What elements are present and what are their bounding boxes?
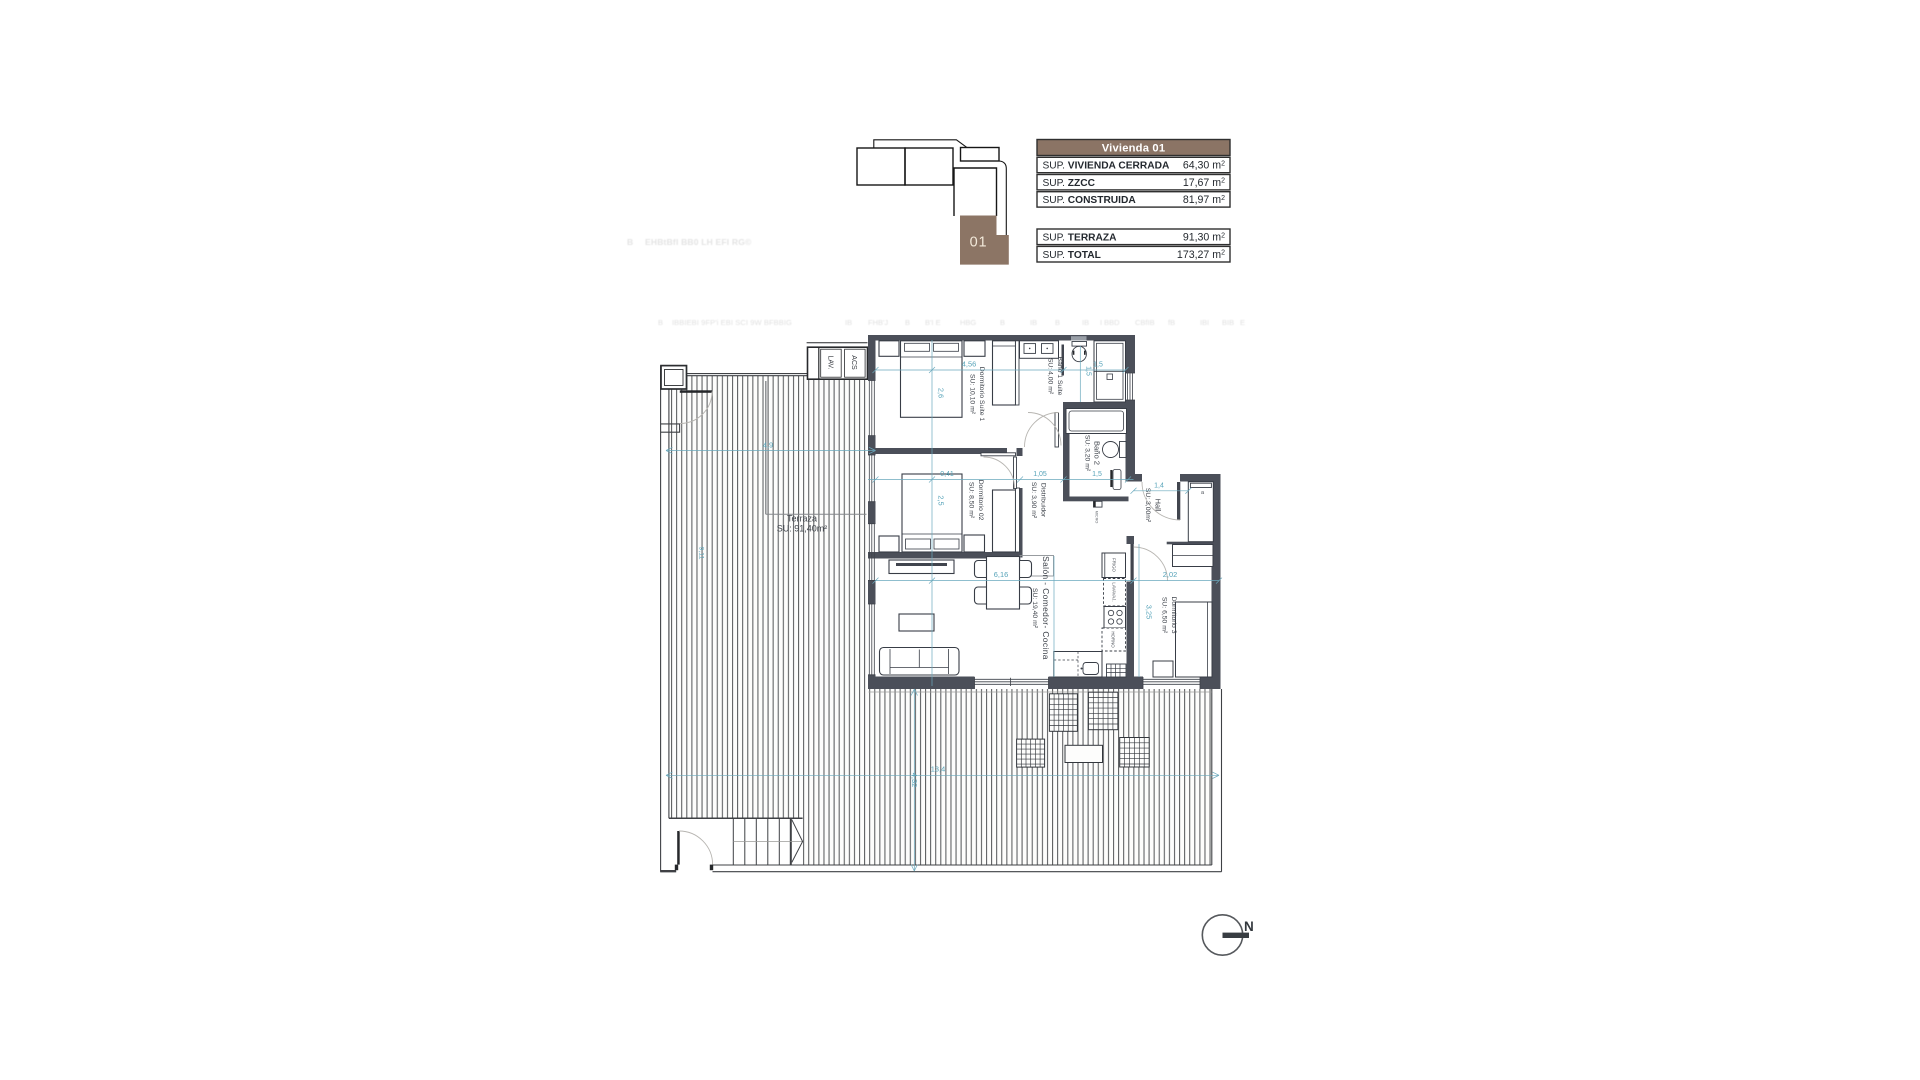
svg-text:2,6: 2,6 bbox=[937, 388, 946, 398]
svg-text:Dormitorio 3: Dormitorio 3 bbox=[1170, 596, 1177, 633]
svg-text:13,4: 13,4 bbox=[931, 765, 945, 774]
svg-text:SUP. ZZCC: SUP. ZZCC bbox=[1043, 178, 1096, 189]
svg-text:01: 01 bbox=[970, 235, 988, 251]
svg-text:64,30 m2: 64,30 m2 bbox=[1183, 160, 1225, 172]
svg-text:Salón - Comedor- Cocina: Salón - Comedor- Cocina bbox=[1041, 556, 1051, 660]
svg-text:HBG: HBG bbox=[960, 318, 976, 327]
svg-text:3,25: 3,25 bbox=[1145, 605, 1154, 619]
svg-text:SU: 4,00 m²: SU: 4,00 m² bbox=[1047, 358, 1054, 395]
svg-text:BIB: BIB bbox=[1222, 318, 1234, 327]
svg-text:FHB'J: FHB'J bbox=[868, 318, 888, 327]
svg-text:17,67 m2: 17,67 m2 bbox=[1183, 177, 1225, 189]
svg-text:LAVAVAJ.: LAVAVAJ. bbox=[1112, 582, 1117, 601]
svg-text:SU: 3,90 m²: SU: 3,90 m² bbox=[1030, 482, 1037, 519]
svg-text:Baño 2: Baño 2 bbox=[1093, 441, 1102, 465]
svg-text:SU: 3,00m²: SU: 3,00m² bbox=[1144, 488, 1151, 523]
svg-text:2,02: 2,02 bbox=[1163, 570, 1177, 579]
svg-text:B: B bbox=[627, 237, 633, 247]
svg-text:FRIGO: FRIGO bbox=[1112, 558, 1117, 572]
svg-text:SUP. TOTAL: SUP. TOTAL bbox=[1043, 250, 1101, 261]
svg-text:I BBD: I BBD bbox=[1100, 318, 1120, 327]
svg-text:EHBtBfl BB0 LH EFI RG©: EHBtBfl BB0 LH EFI RG© bbox=[645, 237, 752, 247]
svg-text:B'I E: B'I E bbox=[925, 318, 941, 327]
svg-text:fB: fB bbox=[1168, 318, 1175, 327]
svg-text:SU: 91,40m²: SU: 91,40m² bbox=[777, 524, 828, 534]
svg-text:SUP. TERRAZA: SUP. TERRAZA bbox=[1043, 233, 1118, 244]
svg-text:IB: IB bbox=[845, 318, 852, 327]
svg-text:MICRO: MICRO bbox=[1095, 511, 1099, 524]
svg-text:IB: IB bbox=[1082, 318, 1089, 327]
svg-text:IBBIEBI 9FP'i EBI SCI 9W BFBBI: IBBIEBI 9FP'i EBI SCI 9W BFBBIG bbox=[672, 318, 792, 327]
svg-text:N: N bbox=[1244, 919, 1254, 934]
svg-text:HORNO: HORNO bbox=[1111, 631, 1116, 648]
svg-text:B: B bbox=[905, 318, 910, 327]
svg-text:SU: 19,40 m²: SU: 19,40 m² bbox=[1031, 588, 1038, 629]
svg-text:IB: IB bbox=[1030, 318, 1037, 327]
svg-text:Hall: Hall bbox=[1154, 499, 1163, 512]
svg-text:4,32: 4,32 bbox=[910, 773, 919, 787]
svg-text:B: B bbox=[658, 318, 663, 327]
svg-text:SU: 8,50 m²: SU: 8,50 m² bbox=[968, 482, 975, 519]
svg-text:1,5: 1,5 bbox=[1085, 366, 1092, 376]
svg-text:ACS: ACS bbox=[850, 355, 857, 370]
svg-text:81,97 m2: 81,97 m2 bbox=[1183, 194, 1225, 206]
svg-text:IBI: IBI bbox=[1200, 318, 1209, 327]
svg-text:E: E bbox=[1240, 318, 1245, 327]
svg-text:Distribuidor: Distribuidor bbox=[1040, 483, 1047, 518]
svg-text:CBfIB: CBfIB bbox=[1135, 318, 1155, 327]
svg-text:SU: 10,10 m²: SU: 10,10 m² bbox=[969, 374, 976, 415]
svg-text:SUP. CONSTRUIDA: SUP. CONSTRUIDA bbox=[1043, 195, 1137, 206]
svg-text:91,30 m2: 91,30 m2 bbox=[1183, 232, 1225, 244]
svg-text:2,5: 2,5 bbox=[937, 495, 946, 505]
svg-text:1,4: 1,4 bbox=[1154, 483, 1164, 490]
svg-text:B: B bbox=[1000, 318, 1005, 327]
svg-text:4,9: 4,9 bbox=[763, 441, 773, 450]
svg-text:SU: 6,50 m²: SU: 6,50 m² bbox=[1161, 597, 1168, 634]
svg-text:173,27 m2: 173,27 m2 bbox=[1177, 249, 1225, 261]
svg-text:4,56: 4,56 bbox=[962, 360, 976, 369]
svg-text:LAV.: LAV. bbox=[826, 355, 833, 369]
svg-text:B: B bbox=[1055, 318, 1060, 327]
svg-text:1,5: 1,5 bbox=[1093, 362, 1103, 369]
svg-text:Baño 1 Suite: Baño 1 Suite bbox=[1056, 357, 1063, 396]
svg-text:SU: 3,20 m²: SU: 3,20 m² bbox=[1084, 435, 1091, 472]
svg-text:Dormitorio Suite 1: Dormitorio Suite 1 bbox=[978, 367, 985, 422]
svg-text:SUP. VIVIENDA CERRADA: SUP. VIVIENDA CERRADA bbox=[1043, 161, 1170, 172]
svg-text:0,41: 0,41 bbox=[940, 471, 954, 478]
svg-text:Terraza: Terraza bbox=[787, 514, 817, 524]
svg-text:Dormitorio 02: Dormitorio 02 bbox=[977, 480, 984, 521]
svg-text:1,05: 1,05 bbox=[1033, 471, 1047, 478]
svg-text:6,16: 6,16 bbox=[994, 570, 1008, 579]
svg-text:9,11: 9,11 bbox=[698, 547, 705, 560]
svg-text:1,5: 1,5 bbox=[1092, 471, 1102, 478]
svg-text:Vivienda 01: Vivienda 01 bbox=[1102, 143, 1166, 155]
